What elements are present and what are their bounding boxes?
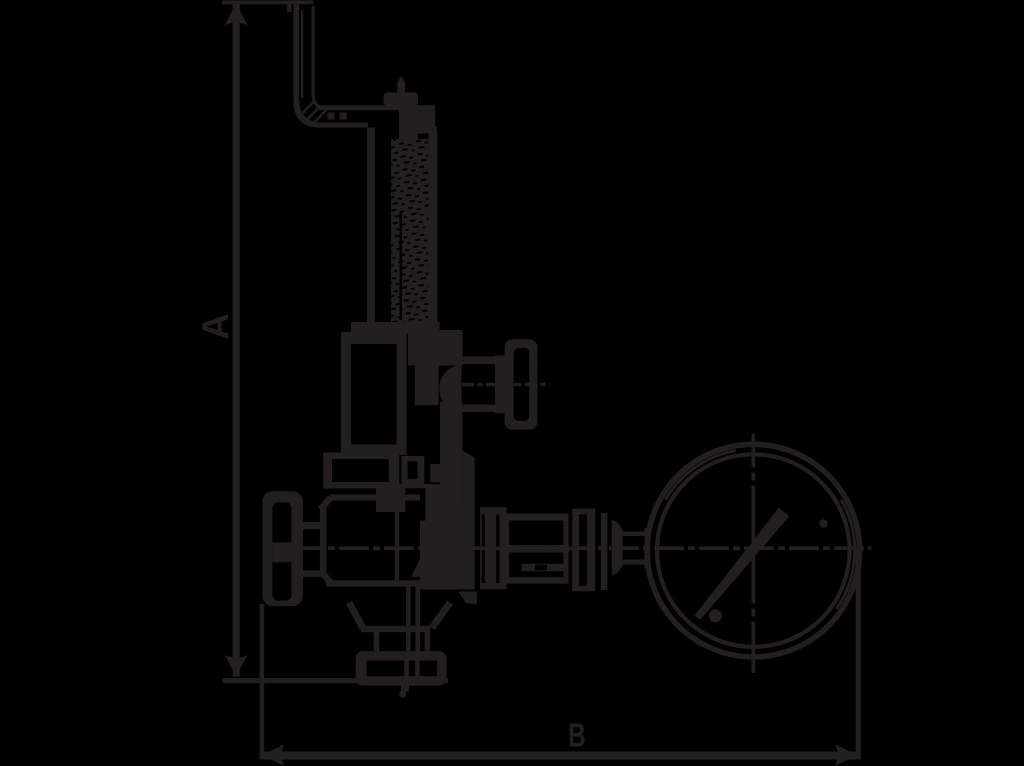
svg-text:B: B [568, 716, 586, 753]
svg-text:A: A [195, 313, 236, 340]
